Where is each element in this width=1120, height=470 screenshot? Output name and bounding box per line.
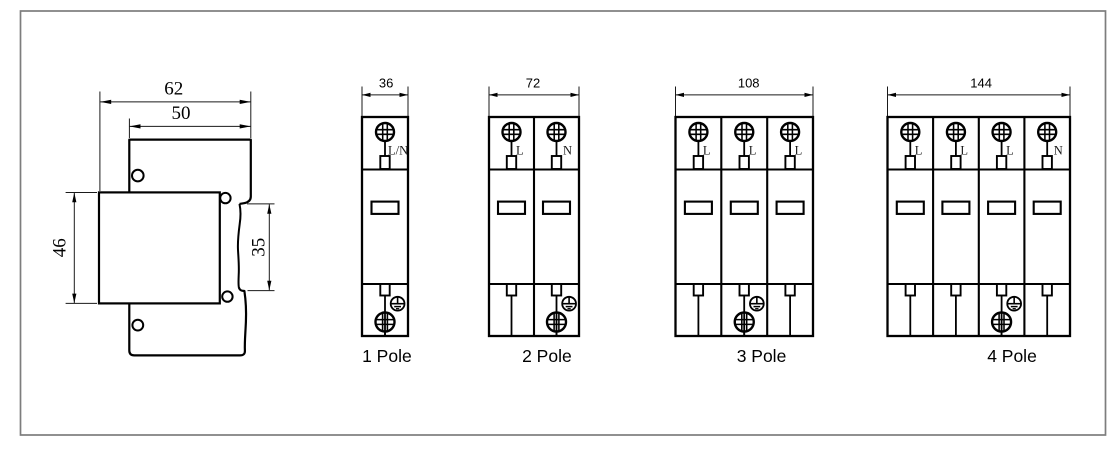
svg-text:L/N: L/N xyxy=(388,144,408,158)
svg-text:N: N xyxy=(1054,144,1063,158)
svg-text:3 Pole: 3 Pole xyxy=(737,346,787,366)
svg-text:N: N xyxy=(563,144,572,158)
svg-text:72: 72 xyxy=(526,76,540,91)
svg-text:1 Pole: 1 Pole xyxy=(362,346,412,366)
svg-text:108: 108 xyxy=(738,76,760,91)
svg-text:35: 35 xyxy=(249,238,270,257)
svg-text:L: L xyxy=(749,144,757,158)
svg-text:62: 62 xyxy=(164,79,183,100)
svg-text:46: 46 xyxy=(49,238,70,257)
svg-text:144: 144 xyxy=(970,76,992,91)
svg-text:2 Pole: 2 Pole xyxy=(522,346,572,366)
svg-text:4 Pole: 4 Pole xyxy=(987,346,1037,366)
svg-text:36: 36 xyxy=(379,76,393,91)
svg-text:50: 50 xyxy=(172,103,191,124)
